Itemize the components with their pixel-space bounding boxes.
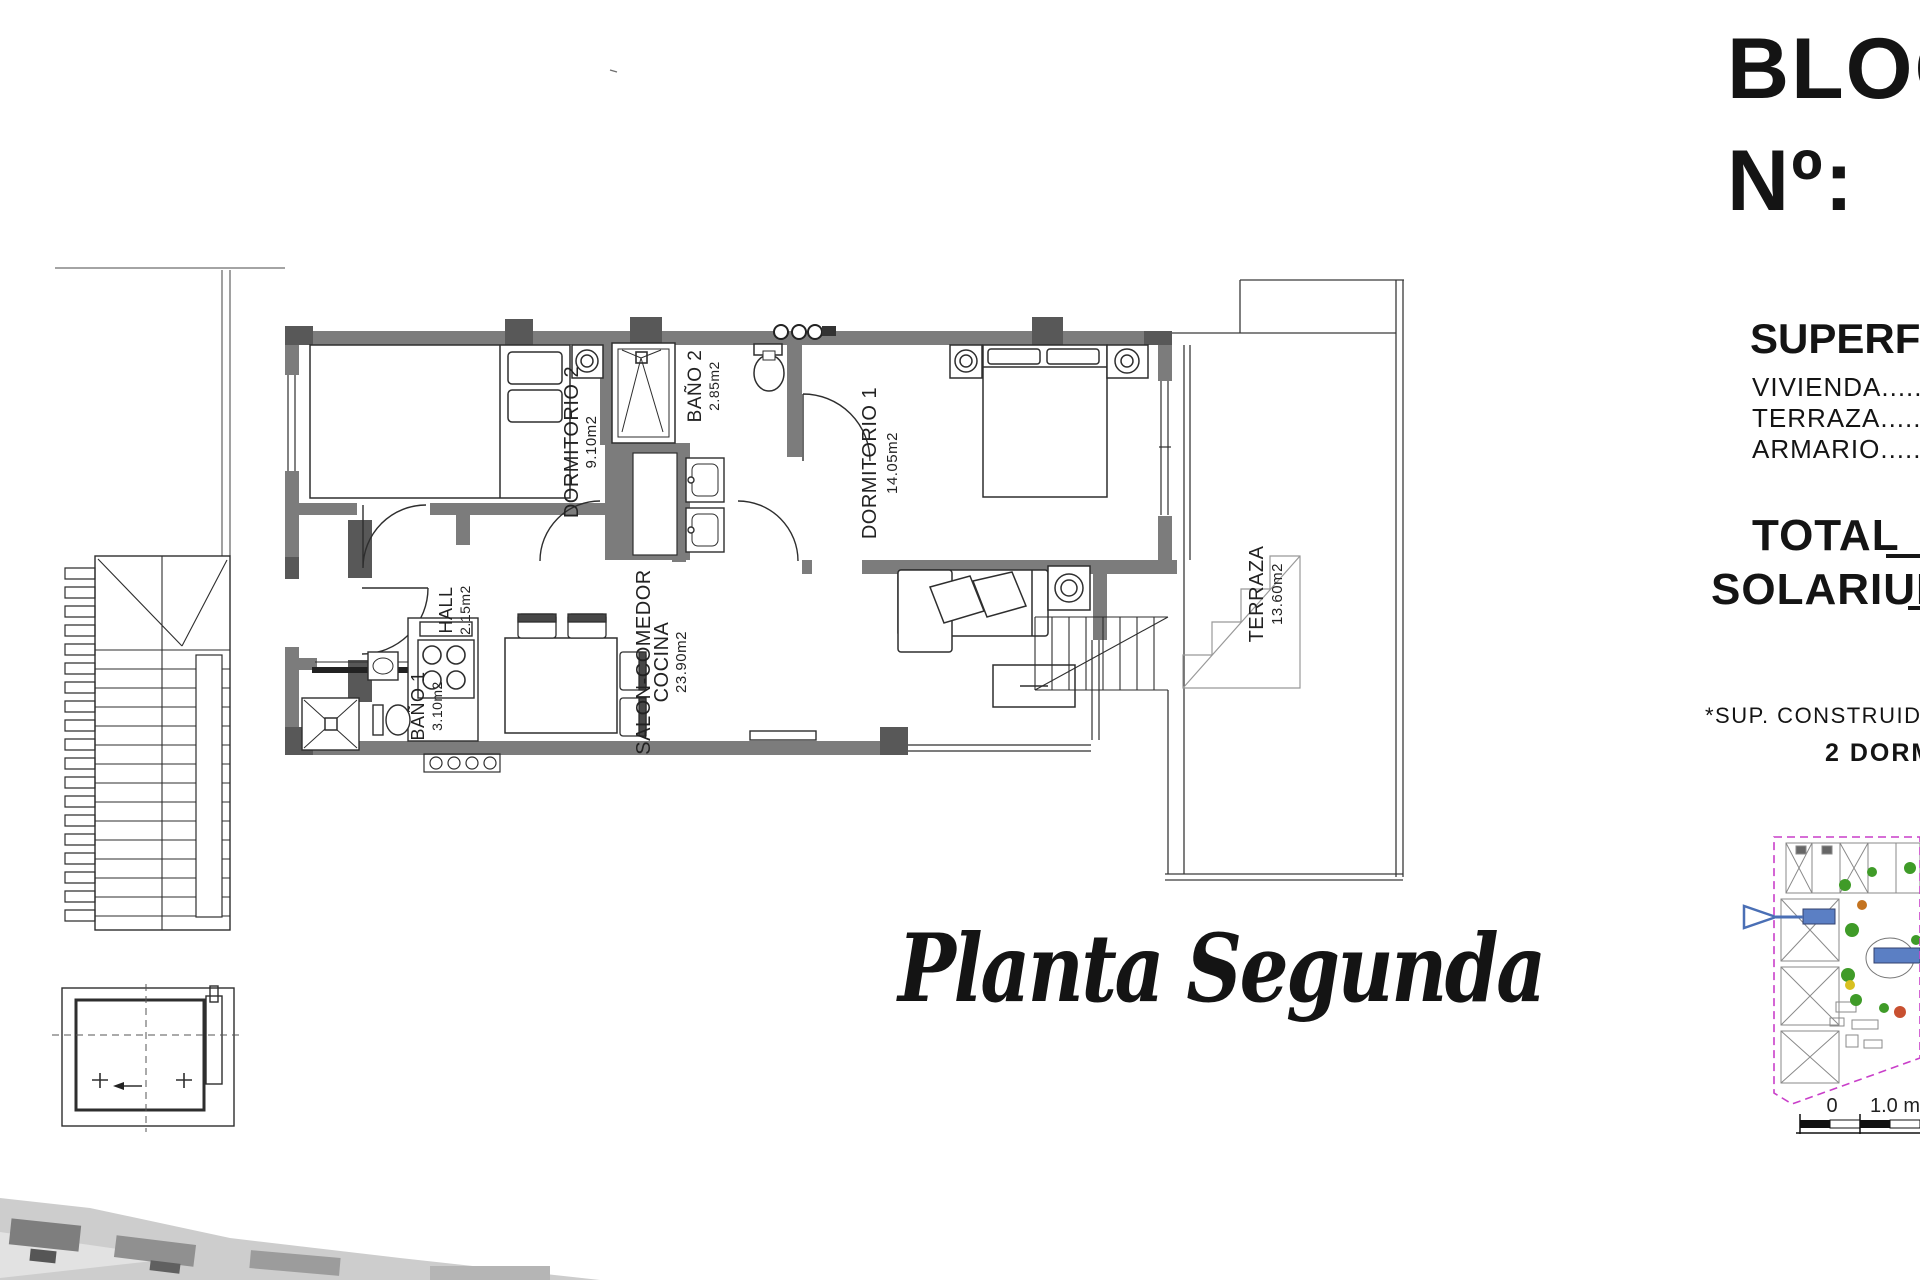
building-photo [0,1198,600,1280]
highlighted-block [1803,909,1835,924]
surface-row-armario: ARMARIO.......................... [1752,436,1920,462]
label-dormitorio2: DORMITORIO 2 [561,366,583,518]
dining-table [505,614,646,736]
scale-one-meter: 1.0 m [1870,1095,1920,1117]
bedrooms-note: 2 DORMITORIOS [1825,741,1920,766]
label-salon-2: COCINA [651,621,673,702]
floorplan-sheet: DORMITORIO 2 9.10m2 BAÑO 2 2.85m2 DORMIT… [0,0,1920,1280]
stairwell [65,556,230,930]
label-terraza-area: 13.60m2 [1269,563,1286,625]
surfaces-title: SUPERFICIES [1750,318,1920,360]
surface-row-terraza: TERRAZA.......................... [1752,405,1920,431]
solarium-line [1908,606,1920,610]
label-hall: HALL [436,586,456,633]
tv-unit [750,731,816,740]
toilet-bano2 [754,344,784,391]
block-heading: BLOQUE [1727,26,1920,112]
constructed-area-note: *SUP. CONSTRUIDA [1705,705,1920,727]
solarium-label: SOLARIUM [1711,568,1920,612]
label-bano2: BAÑO 2 [684,350,706,423]
label-dormitorio1: DORMITORIO 1 [859,387,881,539]
coffee-table [993,665,1075,707]
label-salon-area: 23.90m2 [673,631,690,693]
total-label: TOTAL [1752,514,1900,558]
label-dormitorio1-area: 14.05m2 [884,432,901,494]
direction-arrow-icon [113,1082,124,1090]
side-table [1048,566,1090,610]
scale-bar: 0 1.0 m [1796,1095,1920,1134]
bed-dormitorio2 [310,345,570,498]
block-number-heading: Nº: [1727,138,1855,224]
stair-hatch [65,568,95,921]
label-dormitorio2-area: 9.10m2 [583,415,600,468]
shower-bano2 [612,343,675,443]
toilet-bano1 [373,705,383,735]
label-terraza: TERRAZA [1246,545,1268,642]
closet-armario [633,453,677,555]
total-line [1886,554,1920,558]
ac-units [424,754,500,772]
plan-title: Planta Segunda [898,922,1544,1016]
elevator [52,984,242,1132]
floor-plan-drawing: DORMITORIO 2 9.10m2 BAÑO 2 2.85m2 DORMIT… [0,0,1920,1280]
label-bano2-area: 2.85m2 [706,361,722,411]
sofa [898,570,1048,652]
label-hall-area: 2.15m2 [457,585,473,635]
label-bano1: BAÑO 1 [407,671,428,740]
label-bano1-area: 3.10m2 [429,681,445,731]
bed-dormitorio1 [983,345,1107,497]
scale-zero: 0 [1826,1095,1837,1117]
site-map [1744,837,1920,1104]
surface-row-vivienda: VIVIENDA.......................... [1752,374,1920,400]
